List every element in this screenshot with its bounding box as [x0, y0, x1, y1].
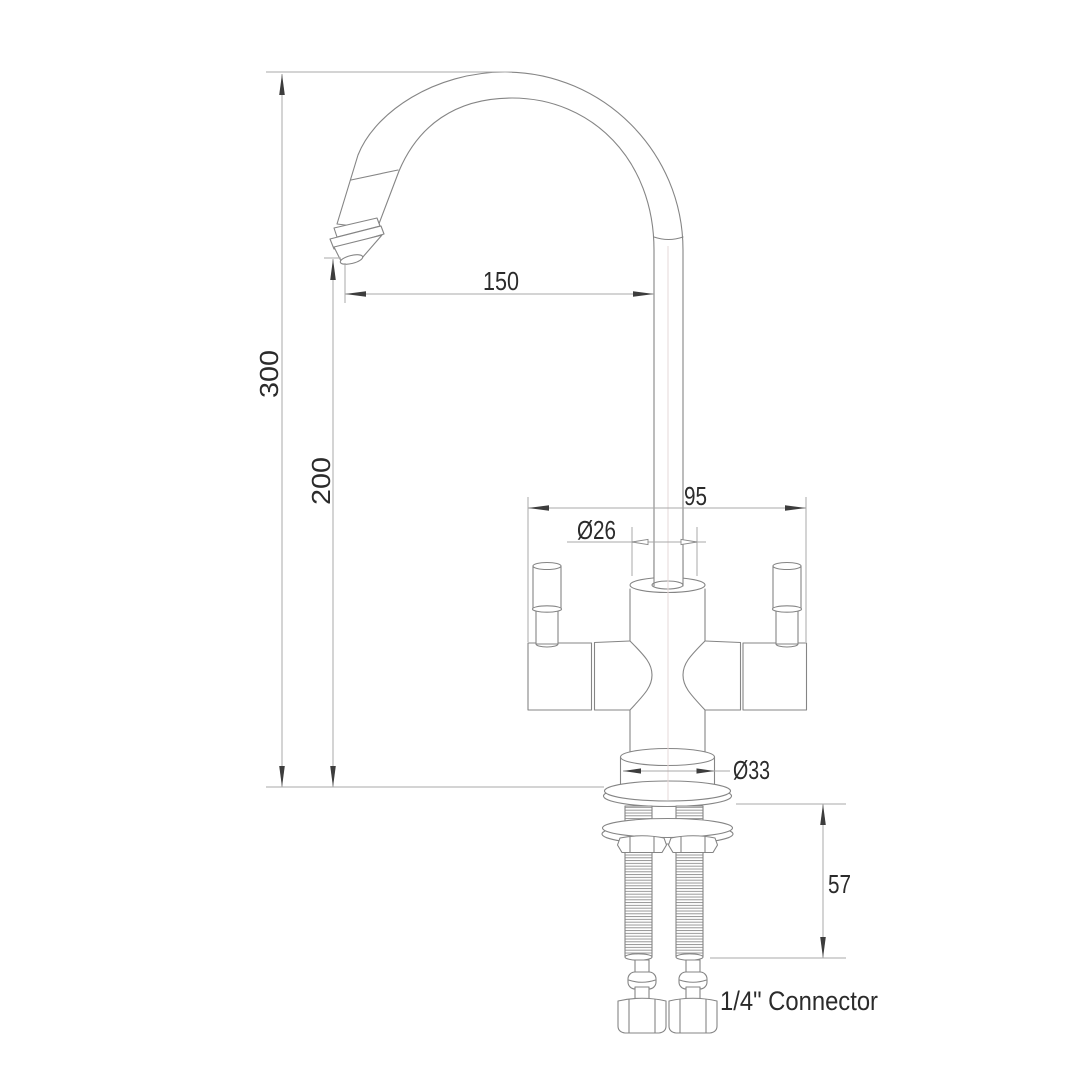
- arrow-d33-left: [623, 768, 641, 773]
- arrow-d26-left: [632, 539, 648, 544]
- label-shank-length: 57: [828, 869, 851, 899]
- threaded-rod-left: [625, 853, 652, 957]
- connector-left-neck-upper: [635, 960, 649, 973]
- mounting-nut-left: [618, 836, 667, 853]
- arrow-d33-right: [697, 768, 715, 773]
- under-sink-assembly: [602, 806, 733, 1033]
- arrow-95-left: [528, 505, 549, 511]
- arrow-300-top: [279, 74, 285, 95]
- arrow-d26-right: [681, 539, 697, 544]
- connector-right-neck-upper: [686, 960, 700, 973]
- gooseneck-spout: [337, 72, 683, 586]
- faucet-dimension-diagram: 300 200 150 95 Ø26 Ø33 57 1/4" Connector: [0, 0, 1080, 1080]
- handle-right-stem: [776, 608, 798, 644]
- connector-right-nut: [669, 998, 717, 1033]
- valve-housing-left: [528, 643, 592, 710]
- handle-left-band: [533, 606, 562, 612]
- arrow-150-right: [633, 291, 654, 297]
- mounting-nut-right: [669, 836, 718, 853]
- handle-right-grip: [773, 566, 801, 610]
- arrow-200-top: [330, 259, 336, 280]
- arrow-57-top: [820, 804, 826, 825]
- threaded-rod-right-end: [676, 954, 703, 960]
- spout-tip: [330, 218, 384, 266]
- threaded-rod-right: [676, 853, 703, 957]
- label-handle-span: 95: [684, 481, 707, 511]
- arrow-300-bottom: [279, 766, 285, 787]
- handle-right-top: [773, 563, 801, 570]
- handle-left-grip: [533, 566, 561, 610]
- label-base-diameter: Ø33: [733, 755, 770, 785]
- handle-left-stem: [536, 608, 558, 644]
- connector-left: [618, 960, 666, 1033]
- arrow-95-right: [785, 505, 806, 511]
- label-connector: 1/4" Connector: [720, 986, 878, 1016]
- valve-housing-left-lines: [595, 641, 631, 710]
- valve-housing-right-lines: [705, 641, 741, 710]
- connector-right: [669, 960, 717, 1033]
- label-spout-reach: 150: [483, 266, 519, 296]
- arrow-57-bottom: [820, 937, 826, 958]
- washer-plate-top: [603, 819, 733, 838]
- technical-drawing-page: 300 200 150 95 Ø26 Ø33 57 1/4" Connector: [0, 0, 1080, 1080]
- handle-right: [773, 563, 802, 648]
- handle-left-top: [533, 563, 561, 570]
- arrow-150-left: [345, 291, 366, 297]
- valve-housing-right: [743, 643, 807, 710]
- handle-right-band: [773, 606, 802, 612]
- handle-left: [533, 563, 562, 648]
- connector-left-nut: [618, 998, 666, 1033]
- arrow-200-bottom: [330, 766, 336, 787]
- body-hourglass-left: [630, 641, 652, 710]
- label-body-diameter: Ø26: [577, 515, 616, 545]
- threaded-rod-left-end: [625, 954, 652, 960]
- body-hourglass-right: [683, 641, 705, 710]
- faucet-outline: [330, 72, 807, 807]
- label-overall-height: 300: [254, 350, 284, 398]
- label-spout-height: 200: [306, 457, 336, 505]
